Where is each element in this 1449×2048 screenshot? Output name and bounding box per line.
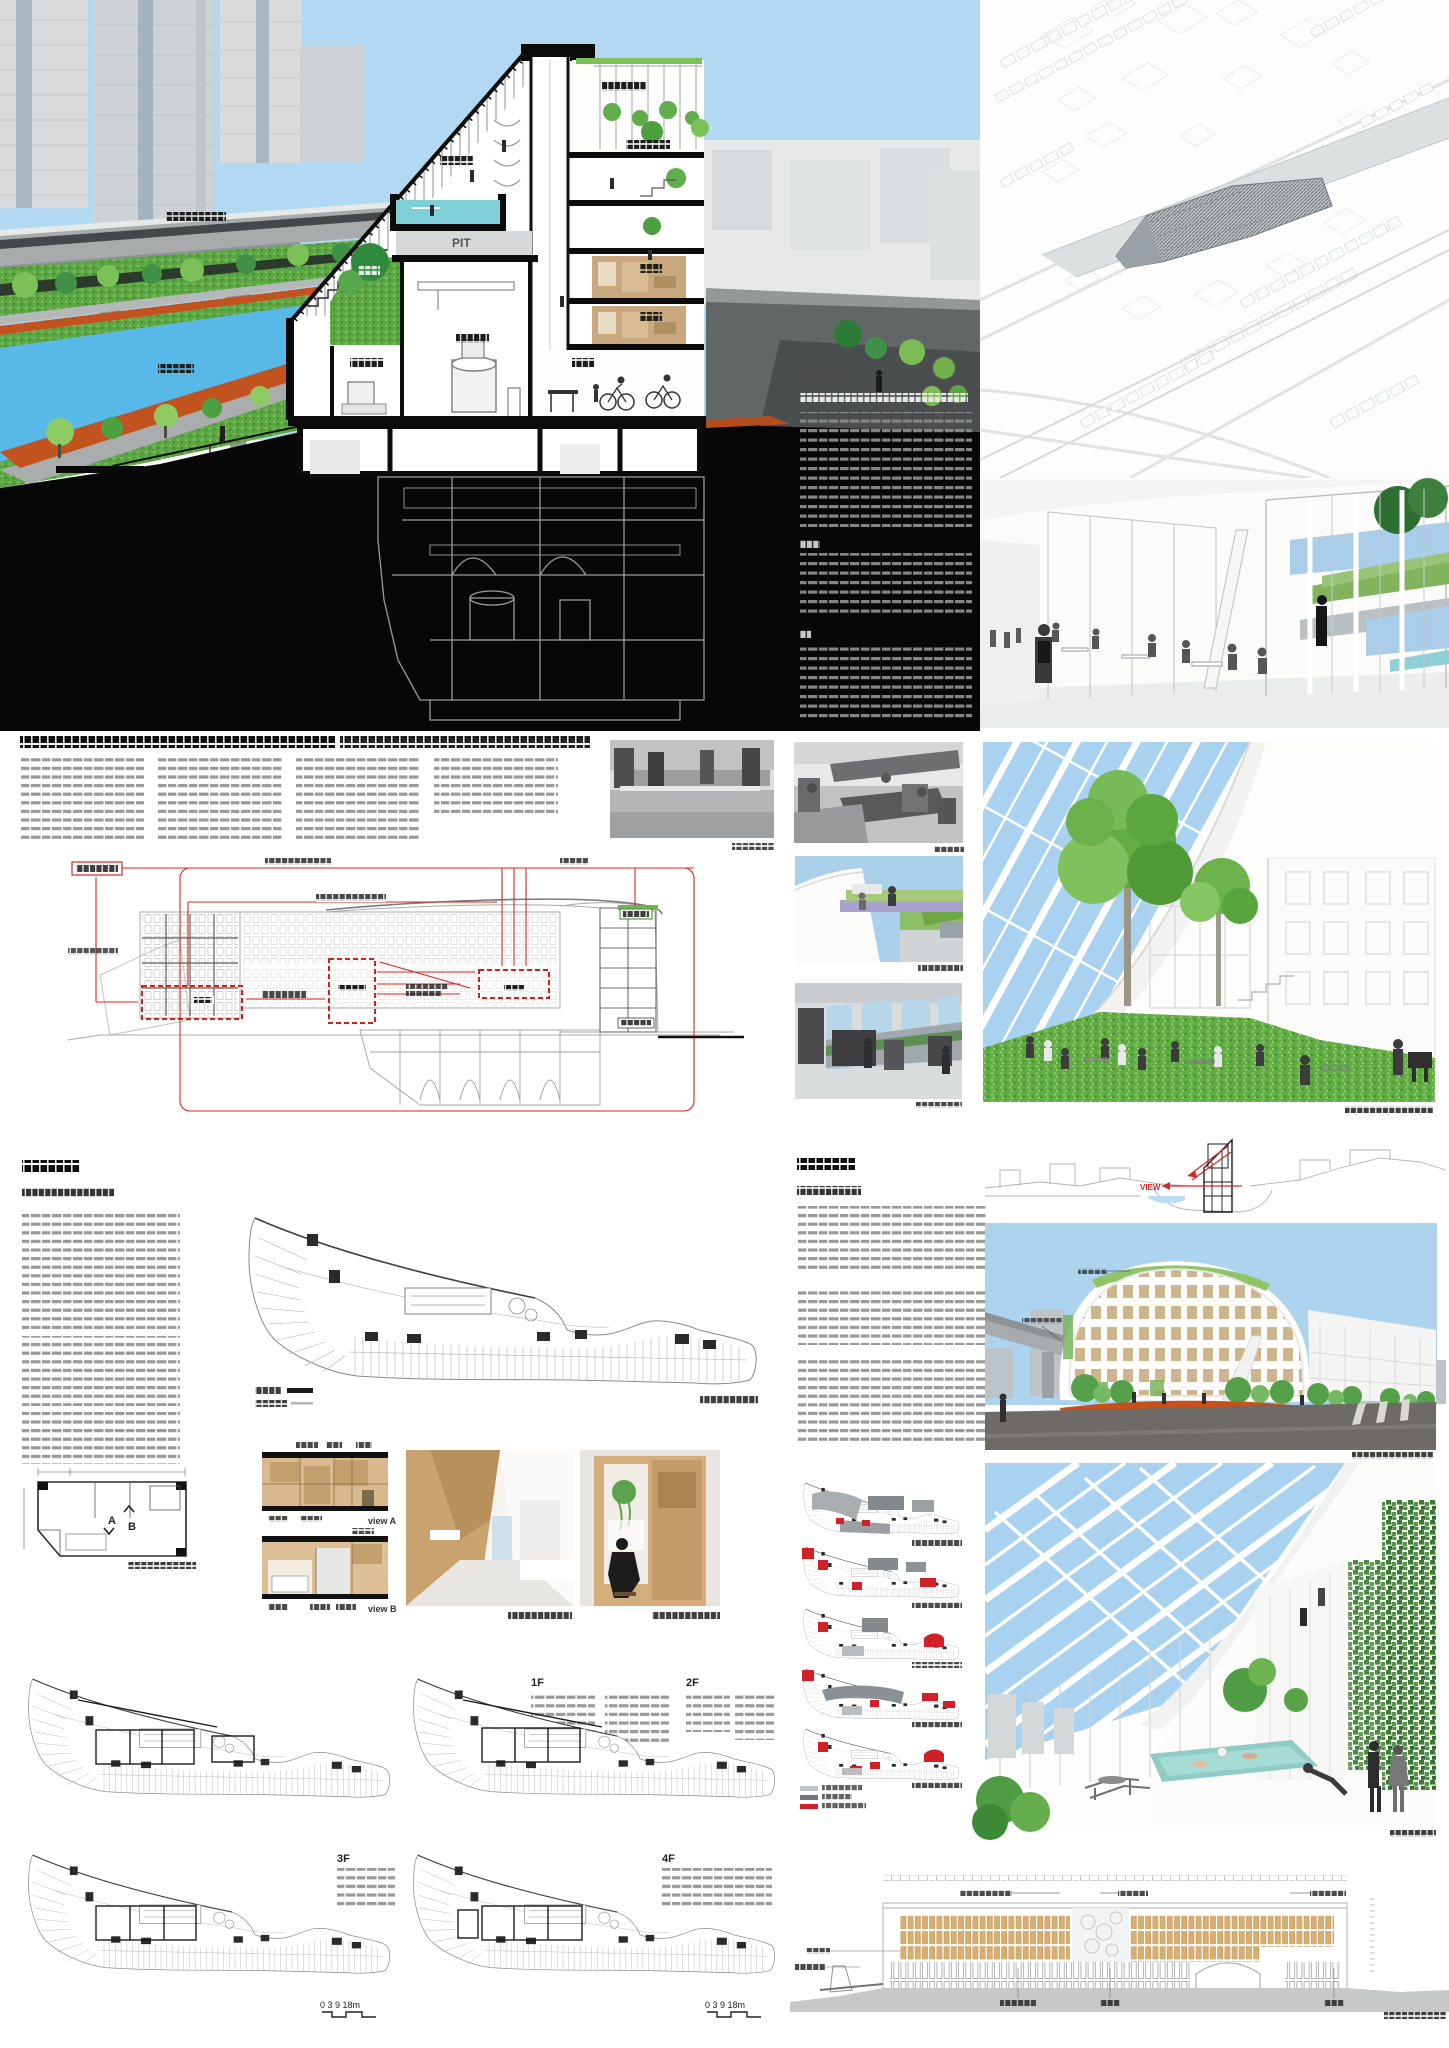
svg-text:view A: view A: [368, 1516, 397, 1526]
svg-text:0 3 9 18m: 0 3 9 18m: [705, 2000, 745, 2010]
svg-text:1F: 1F: [531, 1677, 544, 1689]
svg-text:view B: view B: [368, 1604, 397, 1614]
svg-text:0 3 9 18m: 0 3 9 18m: [320, 2000, 360, 2010]
svg-text:2F: 2F: [686, 1677, 699, 1689]
svg-text:4F: 4F: [662, 1853, 675, 1865]
svg-text:B: B: [128, 1521, 136, 1533]
svg-text:PIT: PIT: [452, 236, 471, 250]
svg-text:A: A: [108, 1515, 116, 1527]
svg-text:VIEW: VIEW: [1140, 1183, 1161, 1192]
svg-text:3F: 3F: [337, 1853, 350, 1865]
